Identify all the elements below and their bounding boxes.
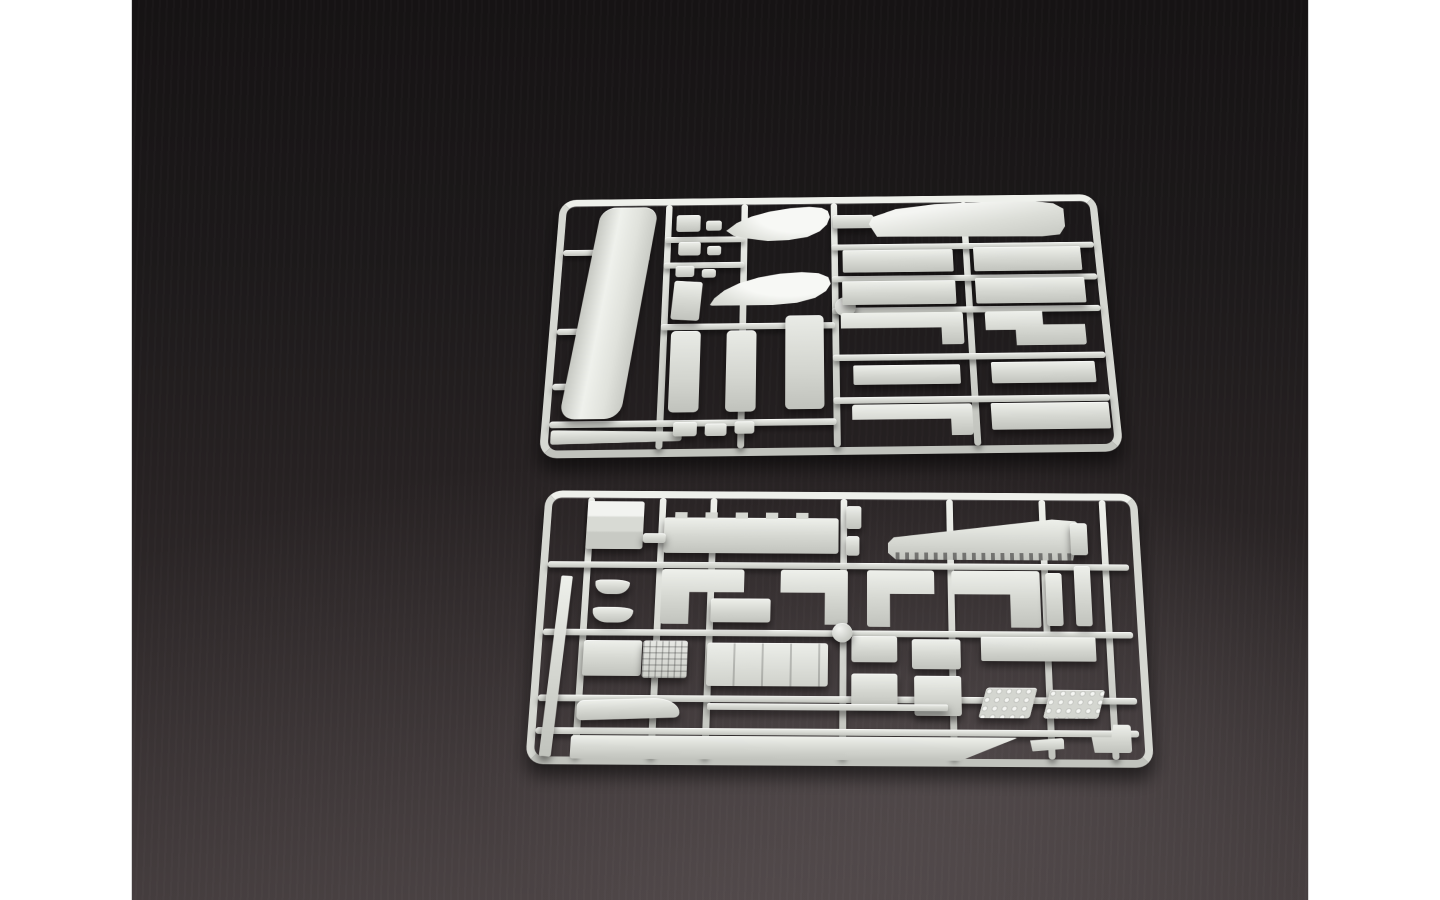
part-rect — [670, 281, 703, 321]
part-box — [585, 501, 645, 549]
part-tread — [978, 688, 1037, 719]
part-rect — [643, 533, 666, 543]
part-strip — [991, 402, 1112, 430]
part-rect — [1045, 573, 1064, 626]
sprue-top — [539, 194, 1124, 458]
part-rect — [851, 673, 897, 706]
part-strip — [707, 703, 948, 711]
part-rect — [678, 242, 701, 256]
part-strip — [853, 364, 961, 385]
part-strip — [973, 246, 1082, 271]
sprue-bottom — [525, 490, 1154, 767]
part-disc — [832, 623, 852, 643]
part-tipstrip — [569, 735, 1018, 761]
part-strip — [842, 280, 956, 305]
photo-stage — [0, 0, 1440, 900]
part-rect — [1074, 566, 1093, 626]
part-rect — [734, 421, 754, 434]
part-rect — [846, 506, 861, 529]
letterbox-left — [0, 0, 132, 900]
part-rect — [676, 215, 701, 232]
part-rect — [675, 266, 694, 277]
part-slab — [785, 315, 824, 409]
part-strip — [975, 277, 1087, 304]
part-rect — [673, 422, 697, 437]
part-strip — [991, 361, 1097, 384]
part-strip — [981, 637, 1097, 662]
photo-background — [131, 0, 1309, 900]
part-slab — [725, 330, 757, 412]
part-rect — [706, 221, 722, 231]
letterbox-right — [1308, 0, 1440, 900]
part-grid — [641, 640, 688, 678]
part-rect — [707, 246, 721, 256]
part-rect — [702, 269, 716, 278]
part-rect — [851, 636, 897, 662]
part-rect — [1070, 523, 1089, 555]
part-slab — [668, 331, 701, 413]
part-rect — [912, 639, 961, 669]
part-decktabs — [663, 517, 839, 553]
part-rect — [582, 640, 643, 676]
sprue-runner — [665, 236, 745, 243]
part-rect — [710, 598, 771, 622]
part-ski — [576, 697, 679, 720]
part-tread — [1043, 690, 1105, 719]
part-strip — [842, 249, 953, 273]
part-panel — [706, 643, 828, 687]
part-rect — [846, 536, 859, 556]
part-rect — [833, 215, 874, 229]
part-rect — [705, 423, 727, 436]
